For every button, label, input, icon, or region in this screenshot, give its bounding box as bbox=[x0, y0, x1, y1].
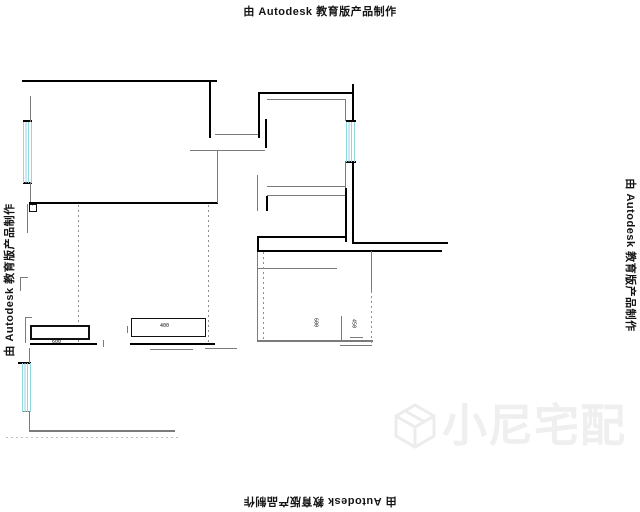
guide-dotted-line bbox=[78, 205, 79, 345]
wall-segment bbox=[22, 80, 217, 82]
thin-line bbox=[29, 411, 30, 432]
wall-segment bbox=[266, 196, 268, 211]
wall-segment bbox=[345, 188, 347, 242]
thin-line bbox=[29, 348, 30, 363]
thin-line bbox=[29, 430, 175, 432]
thin-line bbox=[345, 161, 346, 188]
thin-line bbox=[257, 268, 337, 269]
wall-segment bbox=[30, 343, 97, 345]
thin-line bbox=[215, 134, 258, 135]
wall-segment bbox=[352, 163, 354, 244]
window-glazing bbox=[22, 363, 31, 412]
wall-segment bbox=[258, 92, 260, 138]
cad-floorplan-screenshot: 600400·600450 由 Autodesk 教育版产品制作 由 Autod… bbox=[0, 0, 640, 512]
window-glazing bbox=[23, 122, 32, 183]
edu-watermark-right: 由 Autodesk 教育版产品制作 bbox=[623, 178, 639, 331]
thin-line bbox=[341, 316, 342, 340]
thin-line bbox=[30, 96, 31, 122]
wall-segment bbox=[265, 119, 267, 148]
thin-line bbox=[20, 277, 28, 278]
thin-line bbox=[25, 317, 32, 318]
micro-dimension-label: 600 bbox=[52, 340, 61, 346]
thin-line bbox=[345, 99, 346, 121]
window-glazing bbox=[346, 122, 356, 162]
thin-line bbox=[127, 326, 128, 333]
thin-line bbox=[27, 204, 28, 233]
thin-line bbox=[30, 182, 31, 202]
thin-line bbox=[267, 186, 346, 187]
guide-dotted-line bbox=[6, 437, 181, 438]
wall-segment bbox=[259, 92, 354, 94]
micro-dimension-label: 400 bbox=[160, 324, 169, 330]
wall-segment bbox=[353, 242, 448, 244]
thin-line bbox=[205, 348, 237, 349]
thin-line bbox=[257, 340, 373, 342]
brand-name: 小尼宅配 bbox=[442, 402, 626, 450]
thin-line bbox=[217, 151, 218, 203]
wall-segment bbox=[29, 202, 218, 204]
guide-dotted-line bbox=[371, 291, 372, 344]
brand-cube-icon bbox=[394, 403, 436, 449]
wall-segment bbox=[257, 250, 442, 252]
edu-watermark-left: 由 Autodesk 教育版产品制作 bbox=[1, 203, 17, 356]
edu-watermark-top: 由 Autodesk 教育版产品制作 bbox=[0, 3, 640, 19]
wall-segment bbox=[352, 84, 354, 122]
thin-line bbox=[190, 150, 265, 151]
guide-dotted-line bbox=[263, 252, 264, 340]
micro-dimension-label: 600 bbox=[312, 318, 318, 327]
thin-line bbox=[340, 345, 372, 346]
thin-line bbox=[350, 337, 363, 338]
thin-line bbox=[20, 277, 21, 291]
thin-line bbox=[257, 252, 258, 341]
furniture-box bbox=[30, 325, 90, 340]
micro-dimension-label: · bbox=[31, 204, 34, 210]
guide-dotted-line bbox=[208, 205, 209, 345]
brand-watermark: 小尼宅配 bbox=[394, 402, 626, 450]
thin-line bbox=[103, 340, 104, 347]
thin-line bbox=[25, 317, 26, 343]
thin-line bbox=[267, 99, 346, 100]
wall-segment bbox=[130, 343, 215, 345]
micro-dimension-label: 450 bbox=[350, 319, 356, 328]
wall-segment bbox=[257, 236, 347, 238]
edu-watermark-bottom: 由 Autodesk 教育版产品制作 bbox=[0, 494, 640, 510]
thin-line bbox=[150, 349, 193, 350]
thin-line bbox=[257, 175, 258, 211]
wall-segment bbox=[209, 80, 211, 138]
thin-line bbox=[267, 195, 345, 196]
thin-line bbox=[371, 251, 372, 291]
